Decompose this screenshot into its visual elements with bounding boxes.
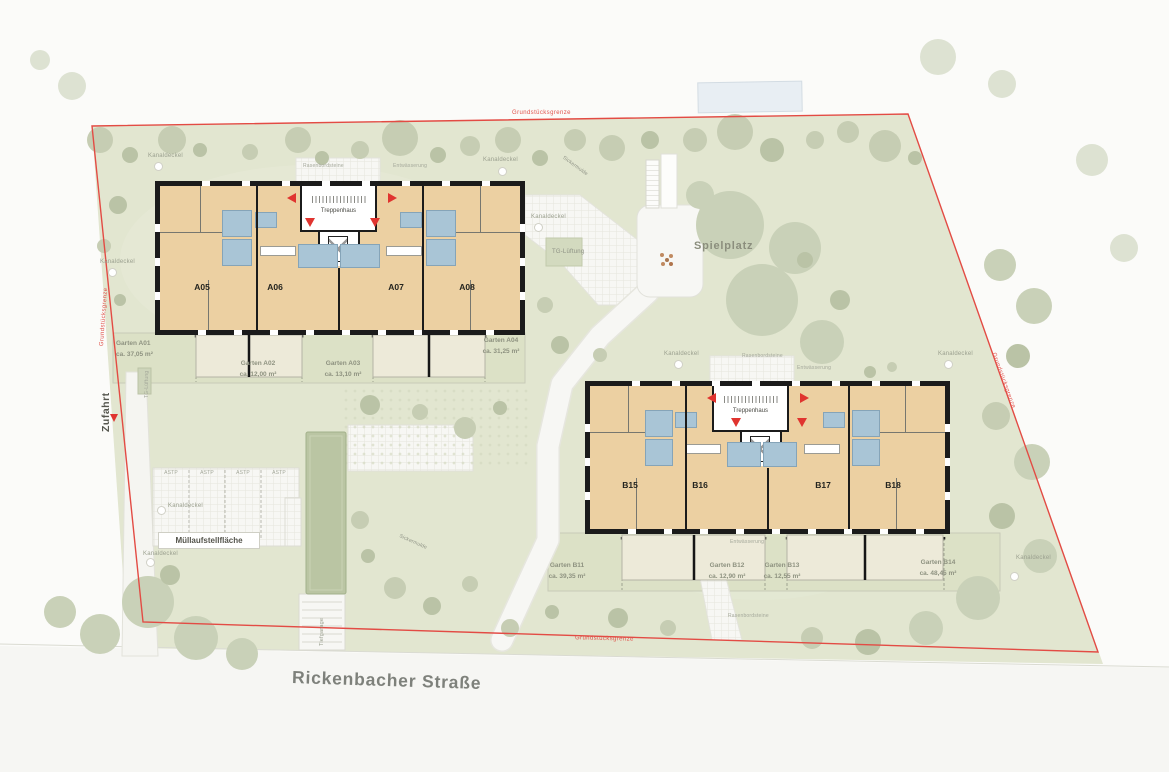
manhole-icon bbox=[154, 162, 163, 171]
garden-name: Garten B11 bbox=[534, 560, 600, 571]
bathroom bbox=[852, 439, 880, 466]
manhole-icon bbox=[944, 360, 953, 369]
garden-label: Garten B11 ca. 39,35 m² bbox=[534, 560, 600, 582]
entrance-arrow-icon bbox=[287, 193, 296, 203]
stair-flight bbox=[312, 196, 368, 203]
stair-flight bbox=[724, 396, 780, 403]
manhole-label: Kanaldeckel bbox=[100, 259, 135, 265]
bathroom bbox=[222, 210, 252, 237]
bathroom bbox=[255, 212, 277, 228]
garden-name: Garten B14 bbox=[905, 557, 971, 568]
entrance-arrow-icon bbox=[800, 393, 809, 403]
garden-area: ca. 31,25 m² bbox=[468, 346, 534, 357]
entrance-arrow-icon bbox=[707, 393, 716, 403]
drainage-label: Entwässerung bbox=[797, 366, 831, 371]
kitchen-counter bbox=[386, 246, 422, 256]
manhole-icon bbox=[1010, 572, 1019, 581]
bathroom bbox=[222, 239, 252, 266]
unit-wall bbox=[256, 186, 258, 330]
bathroom bbox=[727, 442, 761, 467]
unit-wall bbox=[848, 386, 850, 529]
manhole-icon bbox=[108, 268, 117, 277]
waste-area-label: Müllaufstellfläche bbox=[158, 532, 260, 549]
driveway-arrow-icon bbox=[110, 414, 118, 422]
entrance-arrow-icon bbox=[731, 418, 741, 427]
unit-wall bbox=[422, 186, 424, 330]
garden-label: Garten A03 ca. 13,10 m² bbox=[310, 358, 376, 380]
room-wall bbox=[628, 386, 629, 432]
room-wall bbox=[905, 386, 906, 432]
garden-label: Garten A02 ca. 12,00 m² bbox=[225, 358, 291, 380]
site-plan: Treppenhaus Aufzug A05 A06 A07 A08 bbox=[0, 0, 1169, 772]
manhole-label: Kanaldeckel bbox=[938, 351, 973, 357]
drainage-label: Entwässerung bbox=[393, 164, 427, 169]
manhole-label: Kanaldeckel bbox=[168, 503, 203, 509]
driveway-label: Zufahrt bbox=[101, 392, 112, 432]
manhole-icon bbox=[498, 167, 507, 176]
garden-area: ca. 12,55 m² bbox=[749, 571, 815, 582]
windows-left bbox=[155, 198, 160, 318]
garden-area: ca. 48,45 m² bbox=[905, 568, 971, 579]
manhole-label: Kanaldeckel bbox=[483, 157, 518, 163]
unit-wall bbox=[338, 268, 340, 330]
garage-vent-label: TG-Lüftung bbox=[145, 371, 150, 398]
parking-stall-label: ASTP bbox=[231, 471, 255, 476]
entrance-arrow-icon bbox=[388, 193, 397, 203]
manhole-label: Kanaldeckel bbox=[531, 214, 566, 220]
garden-label: Garten B13 ca. 12,55 m² bbox=[749, 560, 815, 582]
entrance-arrow-icon bbox=[305, 218, 315, 227]
windows-left bbox=[585, 398, 590, 517]
manhole-label: Kanaldeckel bbox=[664, 351, 699, 357]
stairwell-label: Treppenhaus bbox=[302, 208, 375, 214]
entrance-arrow-icon bbox=[797, 418, 807, 427]
room-wall bbox=[880, 432, 945, 433]
manhole-label: Kanaldeckel bbox=[1016, 555, 1051, 561]
garden-label: Garten B14 ca. 48,45 m² bbox=[905, 557, 971, 579]
stairwell-b: Treppenhaus bbox=[712, 386, 789, 432]
bathroom bbox=[400, 212, 422, 228]
windows-right bbox=[520, 198, 525, 318]
bathroom bbox=[426, 210, 456, 237]
unit-label: B17 bbox=[798, 480, 848, 490]
kitchen-counter bbox=[804, 444, 840, 454]
unit-label: A06 bbox=[250, 282, 300, 292]
garden-area: ca. 12,00 m² bbox=[225, 369, 291, 380]
room-wall bbox=[590, 432, 645, 433]
unit-wall bbox=[767, 468, 769, 529]
windows-right bbox=[945, 398, 950, 517]
garden-name: Garten B13 bbox=[749, 560, 815, 571]
bathroom bbox=[852, 410, 880, 437]
garden-name: Garten A03 bbox=[310, 358, 376, 369]
building-a: Treppenhaus Aufzug A05 A06 A07 A08 bbox=[155, 181, 525, 335]
bathroom bbox=[426, 239, 456, 266]
play-equipment-icon bbox=[660, 253, 664, 257]
manhole-icon bbox=[146, 558, 155, 567]
unit-label: B16 bbox=[675, 480, 725, 490]
manhole-label: Kanaldeckel bbox=[148, 153, 183, 159]
unit-label: A05 bbox=[177, 282, 227, 292]
unit-label: B18 bbox=[868, 480, 918, 490]
garden-area: ca. 37,05 m² bbox=[116, 349, 153, 360]
bathroom bbox=[645, 439, 673, 466]
bathroom bbox=[823, 412, 845, 428]
windows-bottom bbox=[170, 330, 510, 335]
lawn-edge-label: Rasenbordsteine bbox=[728, 614, 769, 619]
parking-stall-label: ASTP bbox=[267, 471, 291, 476]
garden-area: ca. 13,10 m² bbox=[310, 369, 376, 380]
kitchen-counter bbox=[260, 246, 296, 256]
room-wall bbox=[160, 232, 222, 233]
unit-label: A08 bbox=[442, 282, 492, 292]
garden-label: Garten A04 ca. 31,25 m² bbox=[468, 335, 534, 357]
boundary-label-top: Grundstücksgrenze bbox=[512, 110, 571, 116]
bathroom bbox=[340, 244, 380, 268]
room-wall bbox=[456, 232, 520, 233]
lawn-edge-label: Rasenbordsteine bbox=[742, 354, 783, 359]
unit-label: B15 bbox=[605, 480, 655, 490]
playground-label: Spielplatz bbox=[694, 241, 753, 252]
manhole-label: Kanaldeckel bbox=[143, 551, 178, 557]
unit-wall bbox=[685, 386, 687, 529]
garage-vent-label: TG-Lüftung bbox=[552, 249, 584, 255]
parking-stall-label: ASTP bbox=[159, 471, 183, 476]
bathroom bbox=[298, 244, 338, 268]
stairwell-label: Treppenhaus bbox=[714, 408, 787, 414]
manhole-icon bbox=[674, 360, 683, 369]
garden-name: Garten A02 bbox=[225, 358, 291, 369]
lawn-edge-label: Rasenbordsteine bbox=[303, 164, 344, 169]
windows-bottom bbox=[600, 529, 935, 534]
building-b: Treppenhaus Aufzug B15 B16 B17 B18 bbox=[585, 381, 950, 534]
garage-label: Tiefgarage bbox=[320, 618, 326, 646]
garden-area: ca. 39,35 m² bbox=[534, 571, 600, 582]
garden-name: Garten A04 bbox=[468, 335, 534, 346]
parking-stall-label: ASTP bbox=[195, 471, 219, 476]
manhole-icon bbox=[534, 223, 543, 232]
bathroom bbox=[645, 410, 673, 437]
garden-name: Garten A01 bbox=[116, 338, 153, 349]
bathroom bbox=[763, 442, 797, 467]
room-wall bbox=[200, 186, 201, 232]
entrance-arrow-icon bbox=[370, 218, 380, 227]
manhole-icon bbox=[157, 506, 166, 515]
garden-label: Garten A01 ca. 37,05 m² bbox=[116, 338, 153, 360]
room-wall bbox=[480, 186, 481, 232]
unit-label: A07 bbox=[371, 282, 421, 292]
drainage-label: Entwässerung bbox=[730, 540, 764, 545]
kitchen-counter bbox=[685, 444, 721, 454]
